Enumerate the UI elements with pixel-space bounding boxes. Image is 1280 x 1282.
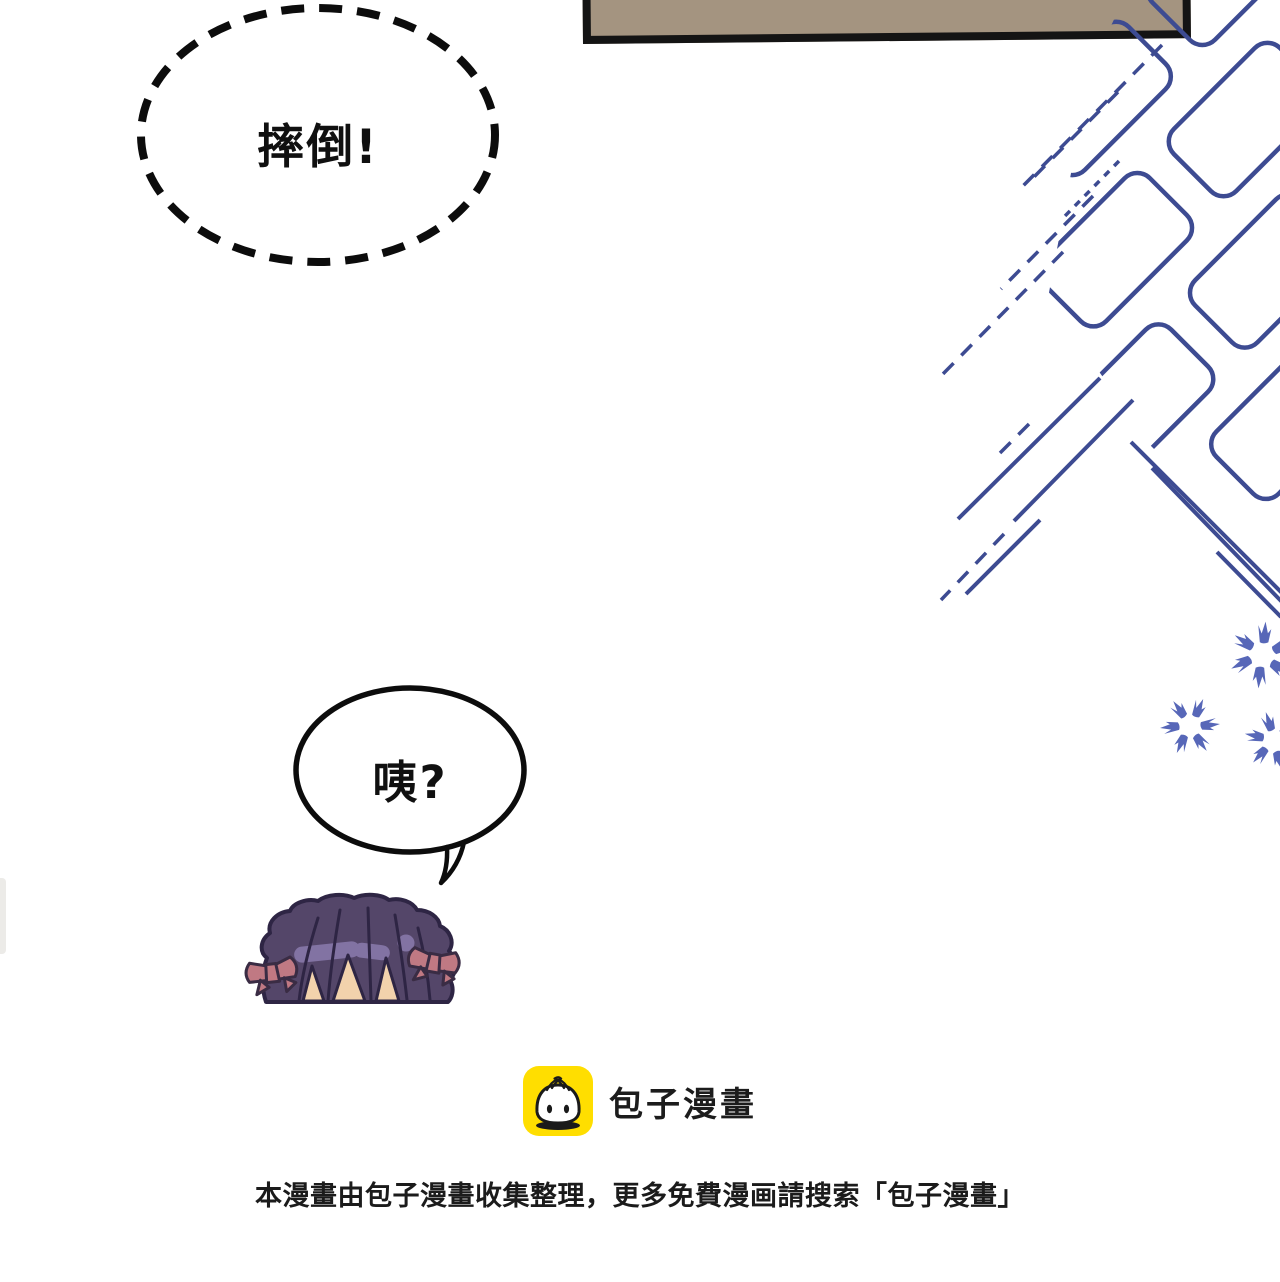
blue-lattice-effect (577, 0, 1280, 702)
baozi-bun-icon (523, 1066, 593, 1136)
round-bubble-text: 咦? (300, 746, 520, 811)
disclaimer-text: 本漫畫由包子漫畫收集整理，更多免費漫画請搜索「包子漫畫」 (0, 1174, 1280, 1213)
dashed-bubble-text: 摔倒! (158, 108, 478, 177)
chibi-girl-head (245, 895, 461, 1002)
sparkle-icon (1150, 617, 1280, 777)
logo-label: 包子漫畫 (609, 1077, 757, 1126)
brand-row: 包子漫畫 (0, 1064, 1280, 1138)
